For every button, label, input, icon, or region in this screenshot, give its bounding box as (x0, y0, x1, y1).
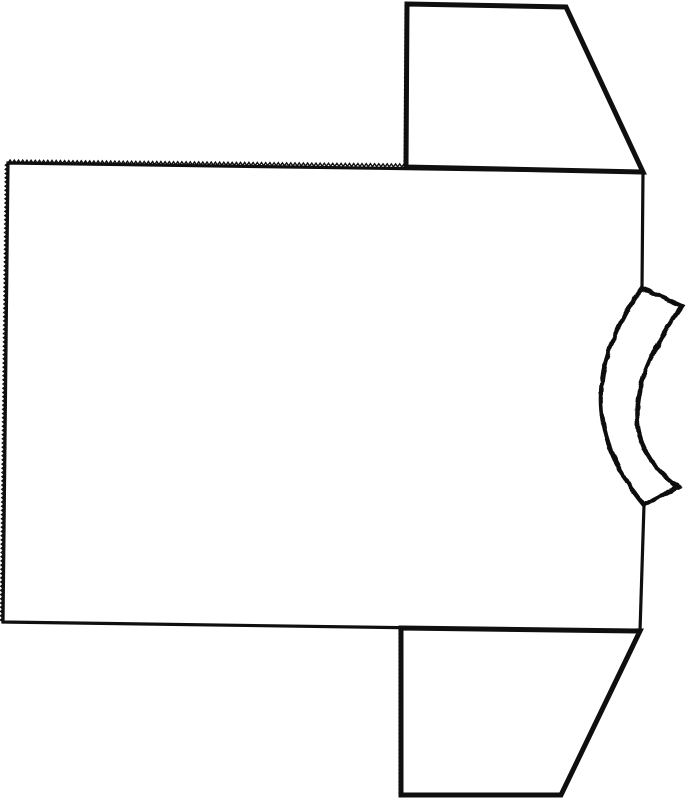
top-sleeve (406, 4, 643, 172)
shapes-layer (0, 4, 682, 795)
body-panel-outline (3, 163, 644, 631)
pattern-figure (0, 0, 687, 800)
pattern-canvas (0, 0, 687, 800)
bottom-sleeve (401, 628, 640, 795)
page: { "drawing": { "description": "Black-and… (0, 0, 687, 800)
neck-band (601, 288, 682, 505)
